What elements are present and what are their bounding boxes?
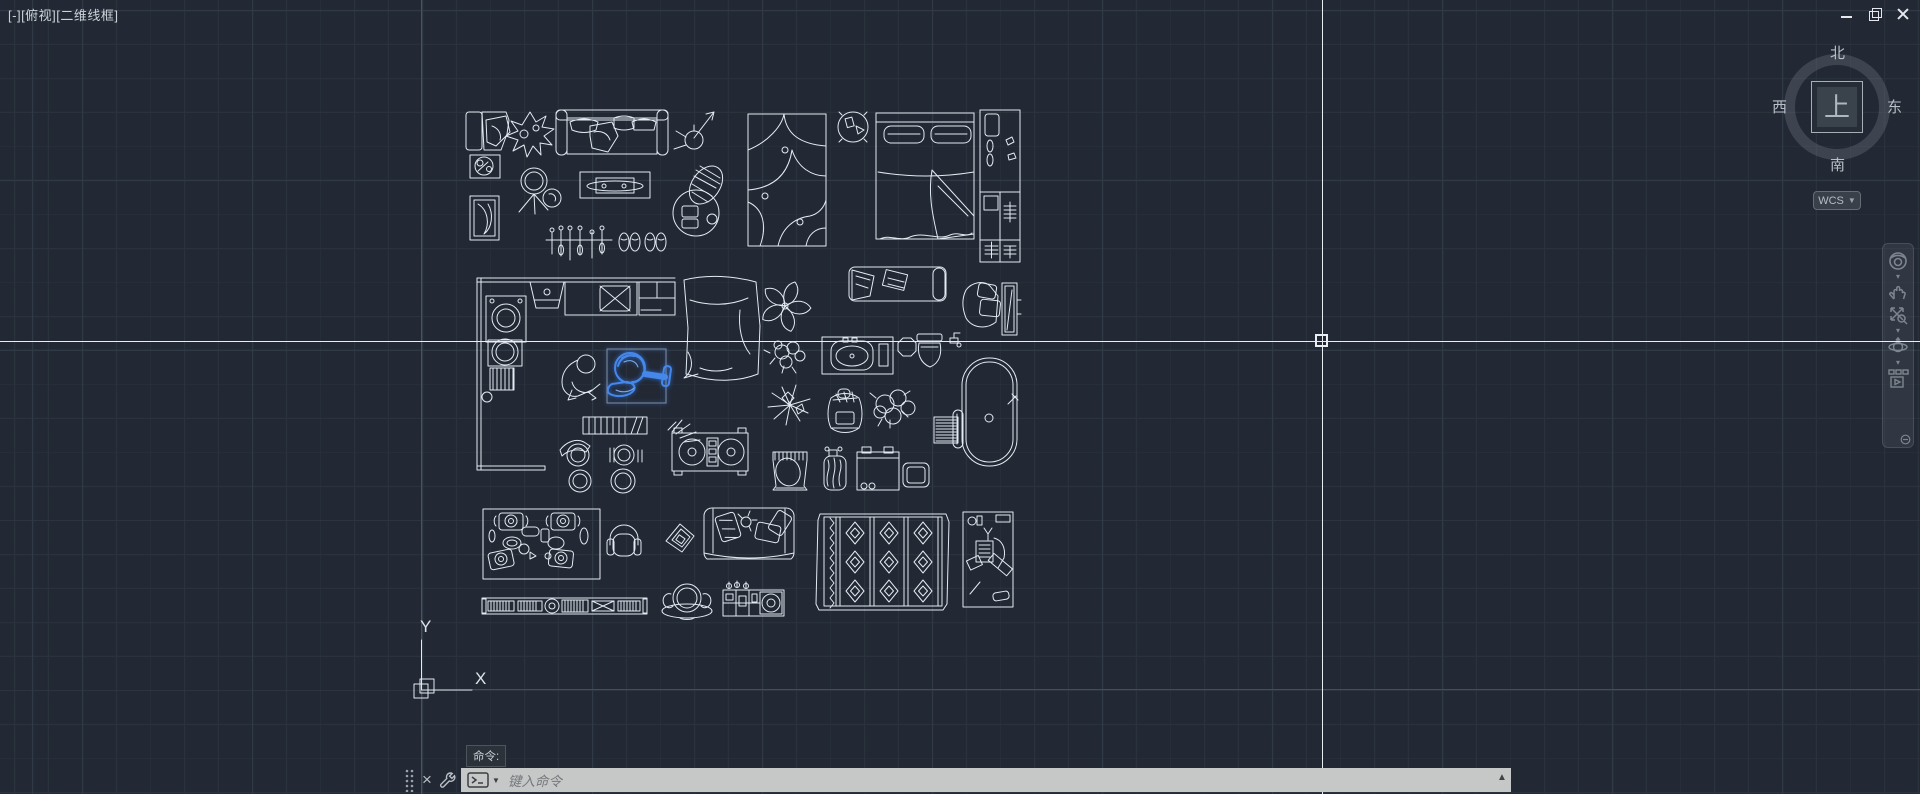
block-bookshelf-row[interactable] [583,417,647,434]
wcs-chevron-icon: ▼ [1848,196,1856,205]
block-large-leafy-plant[interactable] [870,390,915,428]
block-quilt[interactable] [684,276,760,380]
orbit-icon[interactable] [1887,336,1909,358]
block-daybed-bench[interactable] [849,267,946,301]
block-washer-box[interactable] [857,447,899,490]
block-two-seat-sofa[interactable] [704,508,794,559]
block-stool-pair[interactable] [569,469,635,493]
block-coffee-table[interactable] [580,172,650,198]
ucs-y-label: Y [420,617,431,637]
block-abstract-rug[interactable] [748,114,826,246]
block-diamond-book[interactable] [666,524,694,552]
viewcube-west[interactable]: 西 [1772,96,1787,117]
block-tall-wardrobe[interactable] [980,110,1020,262]
command-customize-wrench-icon[interactable] [438,771,456,789]
showmotion-icon[interactable] [1887,368,1909,390]
block-framed-art[interactable] [470,155,500,178]
block-coat-rack[interactable] [546,226,612,260]
navigation-bar: ▾ ▾ ▾ [1882,243,1914,448]
zoom-extents-icon[interactable] [1887,304,1909,326]
orbit-menu-chevron-icon[interactable]: ▾ [1896,360,1900,366]
block-three-seat-sofa[interactable] [556,110,668,155]
window-controls [1840,7,1910,21]
command-close-icon[interactable]: × [422,771,432,788]
navbar-collapse-icon[interactable] [1900,434,1911,445]
block-round-side-table[interactable] [838,112,868,142]
block-tripod-stool[interactable] [519,168,561,214]
block-kilim-rug[interactable] [816,514,949,610]
block-person-figure[interactable] [562,355,600,400]
block-mixer-console[interactable] [723,581,784,616]
block-door-panel-art[interactable] [470,196,499,240]
command-line-dock: × ▼ 键入命令 ▲ [404,766,1511,794]
navigation-wheel-icon[interactable] [1887,250,1909,272]
command-dock-grip[interactable] [404,768,415,792]
crosshair-pickbox [1315,334,1328,347]
viewcube-top-face[interactable]: 上 [1811,81,1863,133]
block-meeting-table-set[interactable] [483,509,600,579]
ucs-icon [414,640,472,698]
block-toilet[interactable] [917,334,942,367]
block-backpack[interactable] [828,389,862,433]
block-vent-grill[interactable] [934,417,958,443]
cad-application-window: Y X [-][俯视][二维线框] 上 北 西 东 南 WCS▼ ▾ [0,0,1920,794]
block-five-petal-plant[interactable] [761,282,812,333]
block-small-leafy-plant[interactable] [764,341,805,373]
block-small-box[interactable] [903,463,929,487]
command-history-expand-icon[interactable]: ▲ [1497,772,1507,783]
ucs-x-label: X [475,669,486,689]
viewport-menu-button[interactable]: [-] [8,8,21,23]
minimize-button[interactable] [1840,7,1854,21]
viewcube-south[interactable]: 南 [1830,154,1845,175]
block-bathroom-plan[interactable] [963,512,1013,607]
block-jar-basket[interactable] [824,447,846,490]
restore-button[interactable] [1868,7,1882,21]
viewcube-east[interactable]: 东 [1887,96,1902,117]
visual-style-control-button[interactable]: [二维线框] [56,8,118,23]
view-control-button[interactable]: [俯视] [21,8,56,23]
block-slippers[interactable] [619,233,666,251]
recent-commands-chevron-icon[interactable]: ▼ [492,776,500,785]
block-headphones[interactable] [607,525,641,556]
block-watering-can-sketch-selected[interactable] [607,349,671,403]
command-prompt-tooltip: 命令: [466,745,506,767]
block-sink-vanity[interactable] [822,337,893,374]
block-piano-keyboard[interactable] [482,598,647,614]
block-faucet[interactable] [950,333,961,347]
block-spiky-plant[interactable] [768,385,810,425]
viewcube-top-label: 上 [1824,94,1850,120]
minimize-icon [1841,16,1852,18]
crosshair-horizontal-line [0,341,1920,342]
block-floor-lamp[interactable] [674,112,714,149]
block-dj-turntables[interactable] [668,420,748,475]
command-input-placeholder: 键入命令 [508,770,562,790]
command-input[interactable]: ▼ 键入命令 ▲ [461,768,1511,792]
block-double-bed[interactable] [876,113,974,239]
viewcube-north[interactable]: 北 [1830,42,1845,63]
close-button[interactable] [1896,7,1910,21]
block-stool-with-scarf[interactable] [560,440,590,466]
wcs-label: WCS [1818,195,1844,207]
block-bar-stool[interactable] [610,445,642,465]
block-oval-bathtub[interactable] [953,358,1018,466]
block-armchair-with-throw[interactable] [466,112,510,150]
block-coffee-cup[interactable] [662,584,712,620]
drawing-canvas[interactable] [0,0,1920,794]
crosshair-vertical-line [1322,0,1323,794]
block-lounge-chair-with-mirror[interactable] [963,283,1021,335]
command-prompt-icon[interactable] [467,772,489,788]
wheel-menu-chevron-icon[interactable]: ▾ [1896,274,1900,280]
wcs-dropdown-button[interactable]: WCS▼ [1813,191,1861,210]
zoom-menu-chevron-icon[interactable]: ▾ [1896,328,1900,334]
viewport-controls: [-][俯视][二维线框] [8,5,119,24]
block-striped-bag[interactable] [772,452,807,490]
pan-hand-icon[interactable] [1887,282,1909,302]
block-plant-sketch[interactable] [506,112,554,157]
block-wicker-chair[interactable] [673,160,730,236]
